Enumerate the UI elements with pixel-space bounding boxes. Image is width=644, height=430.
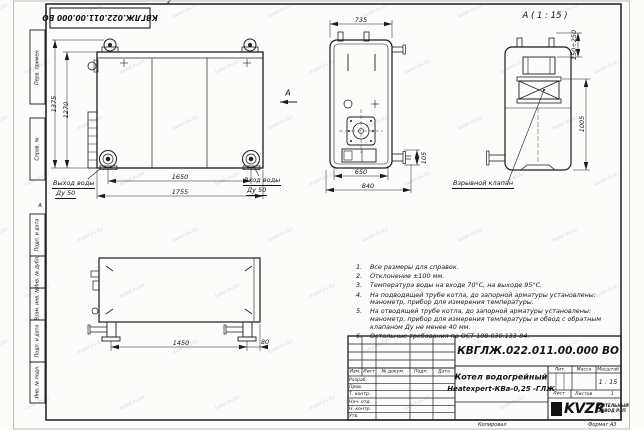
company-name: КОТЕЛЬНЫЙ ЗАВОД РЭП bbox=[598, 403, 629, 414]
margin-field-podp-data-2: Подп. и дата bbox=[35, 325, 40, 358]
label-water-inlet: Вход воды bbox=[243, 176, 281, 186]
note-number: 5. bbox=[356, 308, 370, 331]
sheets-value: 1 bbox=[611, 392, 614, 397]
col-list: Лист bbox=[363, 370, 375, 375]
scale-value: 1 : 15 bbox=[599, 378, 618, 386]
note-text: Все размеры для справок. bbox=[370, 264, 618, 272]
note-item: 5.На отводящей трубе котла, до запорной … bbox=[356, 308, 618, 331]
note-item: 4.На подводящей трубе котла, до запорной… bbox=[356, 292, 618, 307]
margin-field-sprav-no: Справ. № bbox=[35, 137, 40, 160]
drawing-linework bbox=[0, 0, 644, 430]
note-number: 2. bbox=[356, 273, 370, 281]
top-view bbox=[330, 32, 411, 168]
top-stamp-doc-number: КВГЛЖ.022.011.00.000 ВО bbox=[50, 8, 150, 28]
dim-side-legs-span: 1450 bbox=[173, 339, 190, 347]
note-number: 4. bbox=[356, 292, 370, 307]
dim-front-width-fittings: 1650 bbox=[172, 173, 189, 181]
margin-field-inv-dubl: Инв. № дубл. bbox=[35, 256, 40, 289]
margin-field-inv-podl: Инв. № подл. bbox=[35, 365, 40, 398]
label-view-arrow-a: А bbox=[285, 89, 290, 98]
col-ndokum: № докум. bbox=[382, 370, 405, 375]
side-view bbox=[88, 258, 260, 341]
scale-label: Масштаб bbox=[597, 367, 619, 372]
label-water-outlet: Выход воды bbox=[52, 179, 95, 189]
note-text: Отклонение ±100 мм. bbox=[370, 273, 618, 281]
dim-side-leg-offset: 80 bbox=[261, 338, 269, 346]
dim-front-height-overall: 1375 bbox=[50, 96, 58, 113]
front-view bbox=[88, 39, 263, 170]
margin-field-perv-primen: Перв. примен. bbox=[35, 49, 40, 85]
row-razrab: Разраб. bbox=[349, 378, 367, 383]
note-item: 1.Все размеры для справок. bbox=[356, 264, 618, 272]
sheet-label: Лист bbox=[553, 392, 565, 397]
note-number: 1. bbox=[356, 264, 370, 272]
callout-explosion-valve: Взрывной клапан bbox=[452, 179, 514, 189]
product-name-line2: Heatexpert-КВа-0,25 -ГЛЖ bbox=[447, 385, 555, 393]
product-name-line1: Котел водогрейный bbox=[455, 373, 548, 382]
dim-detail-height: 1005 bbox=[578, 116, 586, 133]
dim-top-flange-offset: 105 bbox=[420, 152, 428, 164]
note-text: На подводящей трубе котла, до запорной а… bbox=[370, 292, 618, 307]
row-nach-otd: Нач. отд. bbox=[349, 400, 371, 405]
row-n-kontr: Н. контр. bbox=[349, 407, 371, 412]
note-item: 6.Остальные требования по ОСТ 108.030.13… bbox=[356, 333, 618, 341]
title-block-doc-number: КВГЛЖ.022.011.00.000 ВО bbox=[457, 345, 619, 357]
company-name-line2: ЗАВОД РЭП bbox=[598, 408, 629, 413]
col-data: Дата bbox=[438, 370, 450, 375]
drawing-sheet: kotel-kv.kzkotel-kv.kzkotel-kv.kzkotel-k… bbox=[0, 0, 644, 430]
row-t-kontr: Т. контр. bbox=[349, 392, 370, 397]
note-number: 6. bbox=[356, 333, 370, 341]
col-izm: Изм. bbox=[350, 370, 361, 375]
note-text: Температура воды на входе 70°С, на выход… bbox=[370, 282, 618, 290]
detail-a-title: А ( 1 : 15 ) bbox=[522, 11, 567, 21]
row-utv: Утв. bbox=[349, 414, 359, 419]
margin-field-vzam-inv: Взам. инв. № bbox=[35, 288, 40, 321]
zone-number-top: 2 bbox=[167, 0, 171, 5]
footer-format: Формат А3 bbox=[588, 422, 616, 428]
sheet-frame bbox=[14, 1, 630, 429]
mass-label: Масса bbox=[577, 367, 592, 372]
note-text: На отводящей трубе котла, до запорной ар… bbox=[370, 308, 618, 331]
lit-label: Лит. bbox=[555, 367, 566, 372]
note-item: 2.Отклонение ±100 мм. bbox=[356, 273, 618, 281]
note-number: 3. bbox=[356, 282, 370, 290]
notes-block: 1.Все размеры для справок. 2.Отклонение … bbox=[356, 264, 618, 342]
row-prov: Пров. bbox=[349, 385, 362, 390]
dim-top-width-top: 735 bbox=[355, 16, 367, 24]
dim-detail-valve-travel: 150÷250 bbox=[570, 30, 578, 60]
footer-copied: Копировал bbox=[478, 422, 507, 428]
margin-field-podp-data-1: Подп. и дата bbox=[35, 219, 40, 252]
dim-top-width-inner: 650 bbox=[355, 168, 367, 176]
side-view-dimensions bbox=[111, 324, 268, 351]
note-text: Остальные требования по ОСТ 108.030.133-… bbox=[370, 333, 618, 341]
detail-a-view bbox=[487, 38, 572, 170]
kvzr-logo-icon bbox=[551, 402, 562, 416]
label-water-outlet-dn: Ду 50 bbox=[55, 189, 76, 199]
col-podp: Подп. bbox=[414, 370, 428, 375]
dim-front-width-overall: 1755 bbox=[172, 188, 189, 196]
dim-top-width-overall: 840 bbox=[362, 182, 374, 190]
top-view-dimensions bbox=[326, 20, 420, 193]
dim-front-height-body: 1270 bbox=[62, 102, 70, 119]
label-water-inlet-dn: Ду 50 bbox=[246, 186, 267, 196]
sheets-label: Листов bbox=[575, 392, 592, 397]
zone-letter-left: А bbox=[38, 203, 42, 209]
note-item: 3.Температура воды на входе 70°С, на вых… bbox=[356, 282, 618, 290]
